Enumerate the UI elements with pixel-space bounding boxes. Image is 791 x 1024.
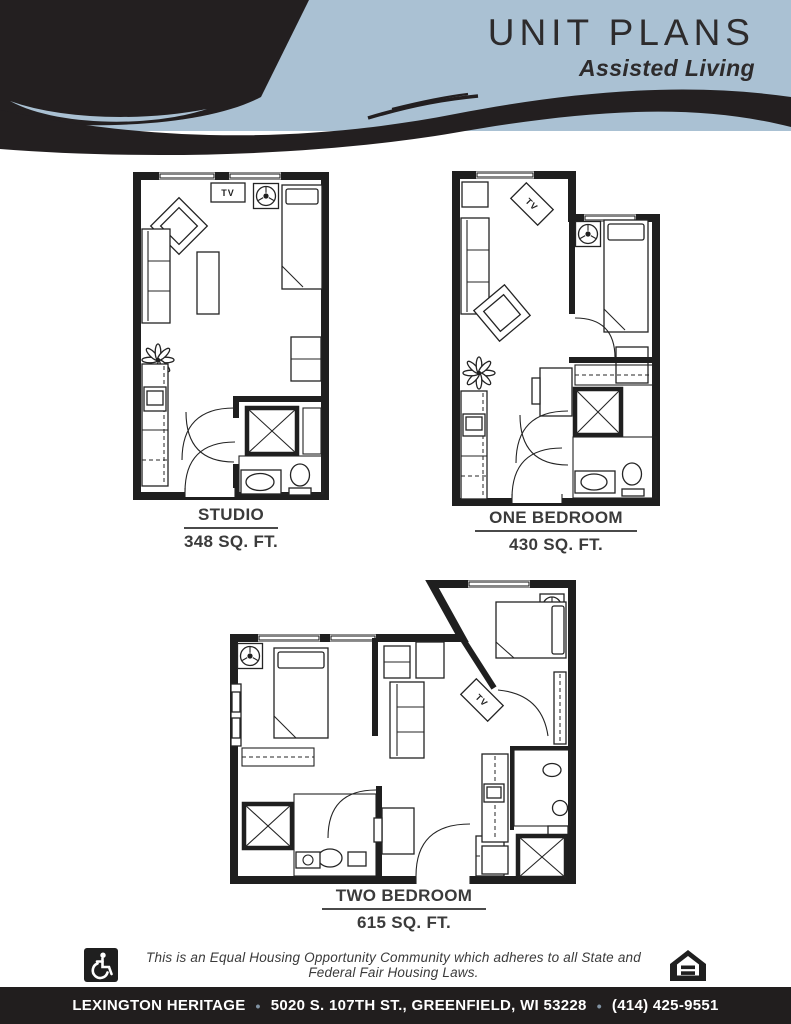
vanity-sink-icon <box>296 852 320 868</box>
kitchenette-icon <box>482 754 508 874</box>
accessibility-icon <box>84 948 118 982</box>
plan-area: 348 SQ. FT. <box>133 532 329 552</box>
address-bar: LEXINGTON HERITAGE • 5020 S. 107TH ST., … <box>0 987 791 1024</box>
interior-wall <box>233 402 239 418</box>
sofa-icon <box>461 218 489 314</box>
unit-plans-page: UNIT PLANS Assisted Living TV <box>0 0 791 1024</box>
equal-housing-row: This is an Equal Housing Opportunity Com… <box>84 946 707 984</box>
plan-name: STUDIO <box>184 505 278 529</box>
plan-area: 430 SQ. FT. <box>440 535 672 555</box>
two-bedroom-floor-plan: TV <box>230 576 578 884</box>
street-address: 5020 S. 107TH ST., GREENFIELD, WI 53228 <box>271 997 587 1014</box>
entry-opening <box>512 494 562 503</box>
bed-icon <box>274 648 328 738</box>
interior-wall <box>510 746 572 750</box>
equal-housing-logo-icon <box>669 949 707 982</box>
bed-icon <box>604 220 648 332</box>
two-bedroom-label: TWO BEDROOM 615 SQ. FT. <box>230 886 578 933</box>
one-bedroom-floor-plan: TV <box>452 171 660 506</box>
interior-wall <box>510 746 514 830</box>
bullet-separator: • <box>256 998 261 1014</box>
studio-floor-plan: TV <box>133 172 329 500</box>
entry-opening <box>416 876 470 884</box>
plan-name: ONE BEDROOM <box>475 508 637 532</box>
toilet-icon <box>622 463 644 496</box>
laundry-bay-icon <box>231 684 241 746</box>
bullet-separator: • <box>597 998 602 1014</box>
plan-name: TWO BEDROOM <box>322 886 486 910</box>
wardrobe-icon <box>554 672 566 744</box>
one-bedroom-label: ONE BEDROOM 430 SQ. FT. <box>440 508 672 555</box>
sofa-icon <box>142 229 170 323</box>
interior-wall <box>372 638 378 736</box>
toilet-icon <box>289 464 311 495</box>
tv-icon: TV <box>211 183 245 202</box>
eho-statement: This is an Equal Housing Opportunity Com… <box>132 950 655 980</box>
sofa-icon <box>390 682 424 758</box>
page-title: UNIT PLANS <box>488 13 755 54</box>
plan-area: 615 SQ. FT. <box>230 913 578 933</box>
entry-opening <box>185 488 235 497</box>
tv-label: TV <box>221 188 235 198</box>
dresser-icon <box>291 337 321 381</box>
interior-wall <box>233 396 329 402</box>
side-table-icon <box>462 182 488 207</box>
shower-closet-icon <box>247 408 297 454</box>
interior-wall <box>569 218 575 314</box>
ceiling-fan-icon <box>238 644 263 669</box>
ceiling-fan-icon <box>576 222 601 247</box>
kitchenette-icon <box>142 364 168 486</box>
ceiling-fan-icon <box>254 184 279 209</box>
title-block: UNIT PLANS Assisted Living <box>488 13 755 82</box>
kitchenette-icon <box>461 391 487 499</box>
bed-icon <box>496 602 566 658</box>
community-name: LEXINGTON HERITAGE <box>72 997 245 1014</box>
vanity-sink-icon <box>575 471 615 493</box>
phone-number: (414) 425-9551 <box>612 997 719 1014</box>
vanity-sink-icon <box>241 470 281 494</box>
studio-label: STUDIO 348 SQ. FT. <box>133 505 329 552</box>
plant-icon <box>463 357 495 389</box>
shower-closet-icon <box>244 804 292 848</box>
shower-closet-icon <box>518 836 566 878</box>
interior-wall <box>569 357 656 363</box>
coffee-table-icon <box>197 252 219 314</box>
shower-closet-icon <box>575 389 621 435</box>
page-subtitle: Assisted Living <box>488 55 755 82</box>
bed-icon <box>282 185 322 289</box>
